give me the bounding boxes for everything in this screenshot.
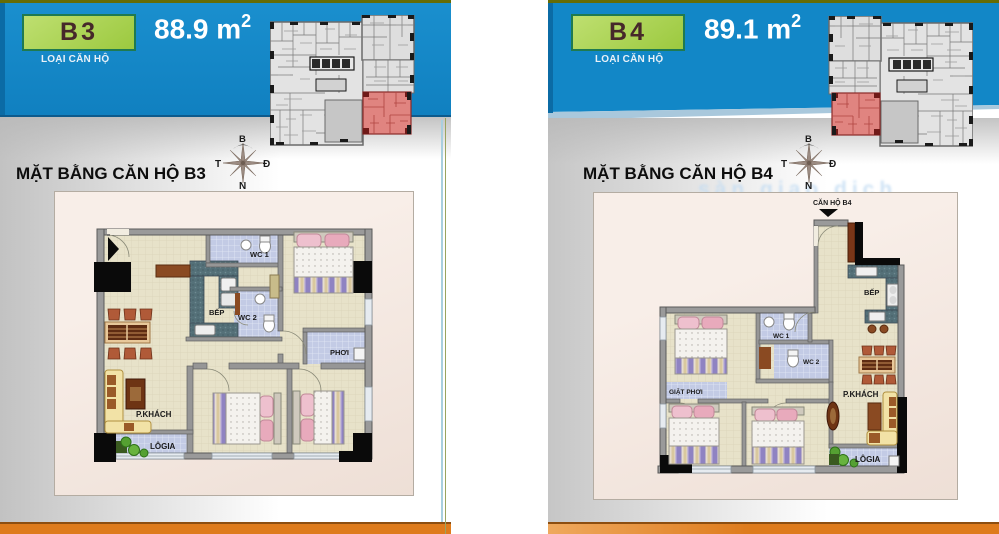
- svg-text:BẾP: BẾP: [864, 287, 879, 297]
- svg-text:N: N: [805, 181, 812, 192]
- svg-text:T: T: [215, 159, 221, 170]
- svg-text:T: T: [781, 159, 787, 170]
- svg-text:LÔGIA: LÔGIA: [150, 442, 176, 451]
- svg-text:CĂN HỘ B4: CĂN HỘ B4: [813, 198, 852, 207]
- svg-text:BẾP: BẾP: [209, 307, 224, 317]
- svg-text:WC 2: WC 2: [238, 313, 257, 322]
- svg-text:LÔGIA: LÔGIA: [855, 455, 881, 464]
- svg-text:P.KHÁCH: P.KHÁCH: [843, 390, 879, 399]
- svg-text:B: B: [239, 134, 246, 145]
- svg-text:WC 1: WC 1: [250, 250, 269, 259]
- svg-text:P.KHÁCH: P.KHÁCH: [136, 410, 172, 419]
- svg-text:WC 1: WC 1: [773, 333, 790, 340]
- svg-text:WC 2: WC 2: [803, 359, 820, 366]
- svg-text:B: B: [805, 134, 812, 145]
- svg-text:PHƠI: PHƠI: [330, 348, 349, 357]
- svg-text:GIẶT PHƠI: GIẶT PHƠI: [669, 387, 703, 396]
- svg-text:Đ: Đ: [829, 159, 836, 170]
- svg-text:Đ: Đ: [263, 159, 270, 170]
